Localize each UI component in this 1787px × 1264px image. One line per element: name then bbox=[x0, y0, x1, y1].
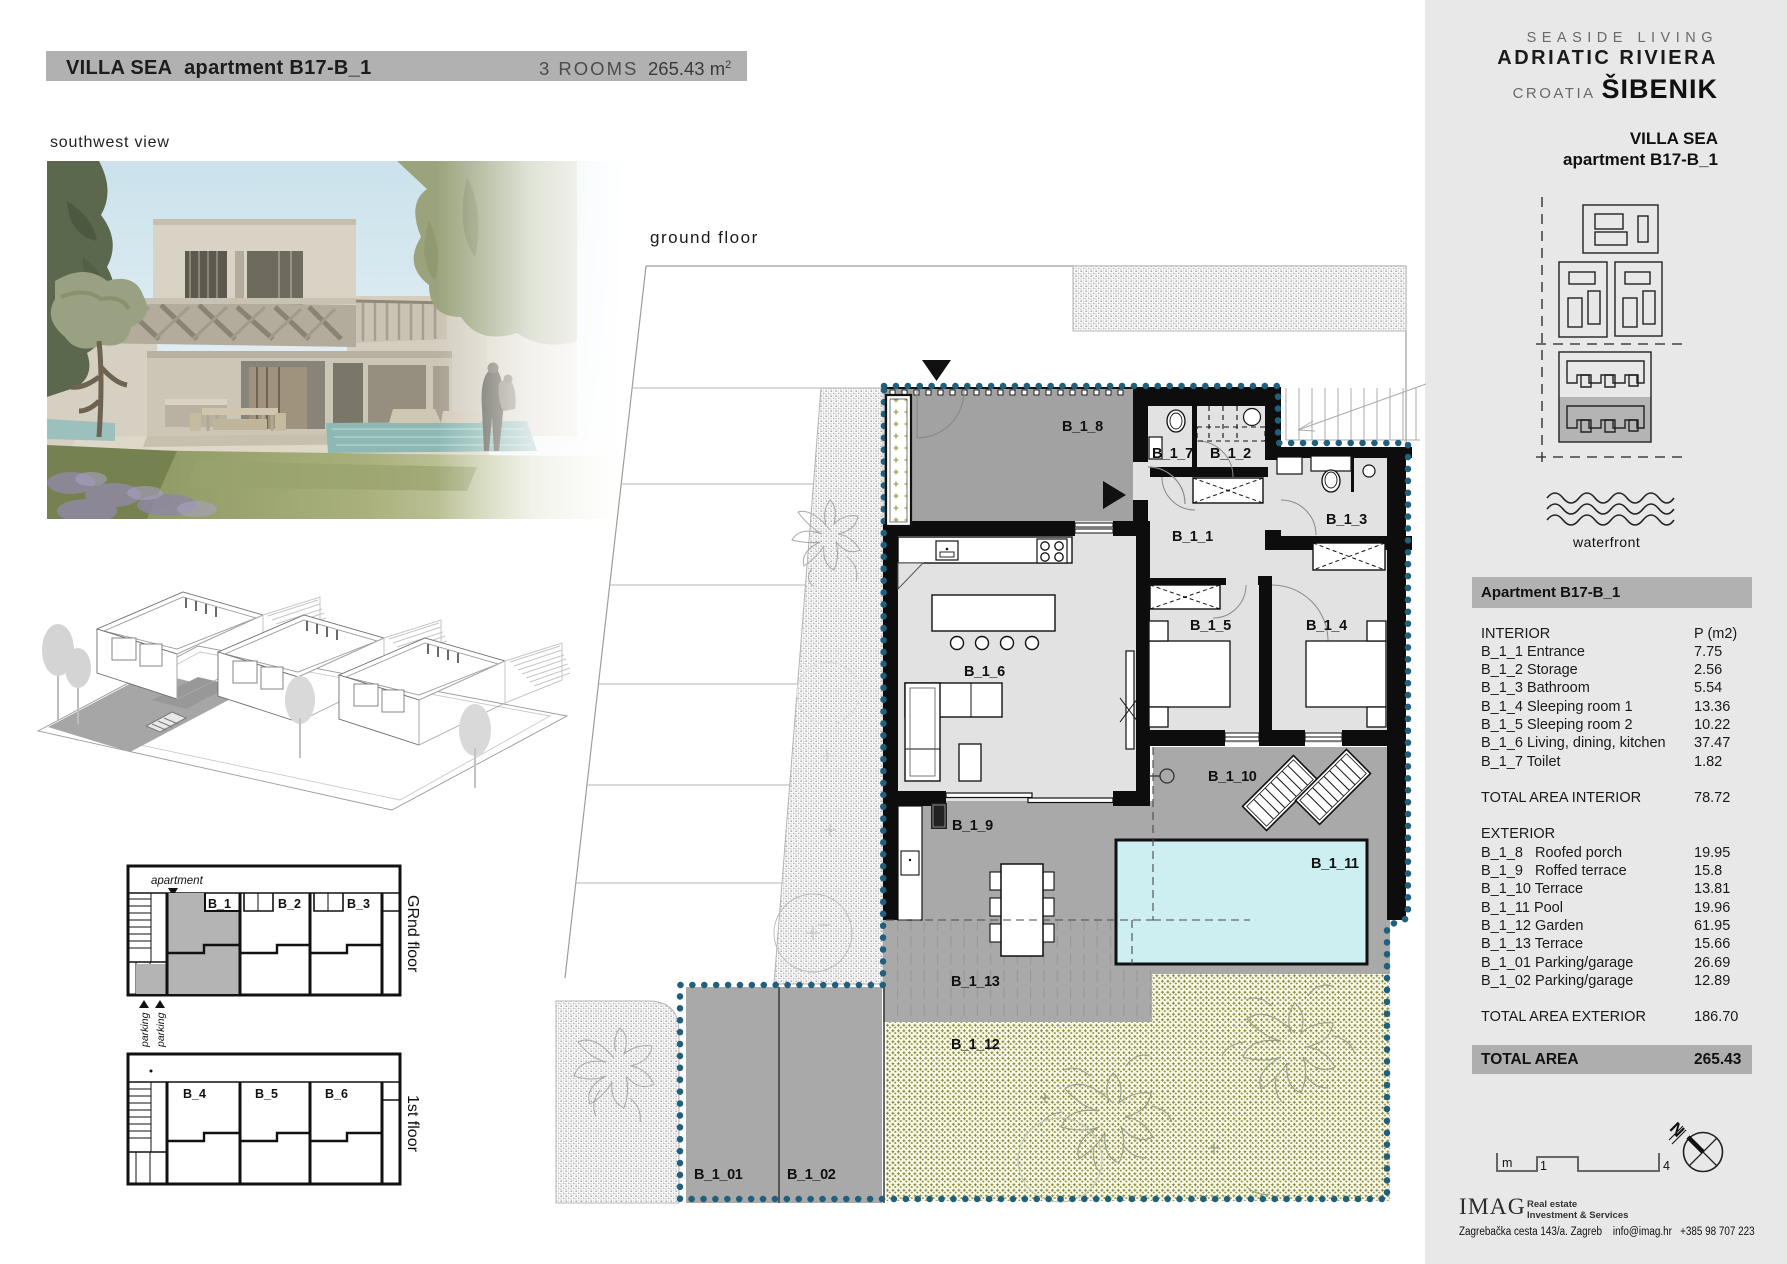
svg-text:B_1_6: B_1_6 bbox=[964, 664, 1005, 680]
svg-text:B_1_13: B_1_13 bbox=[951, 974, 1000, 990]
svg-text:1st floor: 1st floor bbox=[404, 1095, 421, 1153]
svg-text:B_1_4: B_1_4 bbox=[1306, 618, 1347, 634]
svg-text:parking: parking bbox=[139, 1012, 151, 1048]
svg-text:B_4: B_4 bbox=[183, 1087, 206, 1101]
svg-text:B_1_7: B_1_7 bbox=[1152, 446, 1193, 462]
svg-text:GRnd floor: GRnd floor bbox=[404, 895, 421, 973]
svg-text:B_1_12: B_1_12 bbox=[951, 1037, 1000, 1053]
svg-text:B_1_10: B_1_10 bbox=[1208, 769, 1257, 785]
svg-text:B_5: B_5 bbox=[255, 1087, 278, 1101]
svg-text:apartment: apartment bbox=[151, 875, 204, 887]
svg-text:B_1_11: B_1_11 bbox=[1311, 856, 1359, 872]
svg-text:B_1_9: B_1_9 bbox=[952, 818, 993, 834]
svg-text:parking: parking bbox=[155, 1012, 167, 1048]
svg-text:B_6: B_6 bbox=[325, 1087, 348, 1101]
svg-text:B_1_02: B_1_02 bbox=[787, 1167, 836, 1183]
svg-text:4: 4 bbox=[1663, 1159, 1670, 1173]
svg-text:B_1_3: B_1_3 bbox=[1326, 512, 1367, 528]
svg-text:1: 1 bbox=[1540, 1159, 1547, 1173]
svg-text:B_2: B_2 bbox=[278, 897, 301, 911]
svg-text:B_3: B_3 bbox=[347, 897, 370, 911]
svg-text:B_1_2: B_1_2 bbox=[1210, 446, 1251, 462]
svg-text:B_1_5: B_1_5 bbox=[1190, 618, 1231, 634]
svg-text:B_1_01: B_1_01 bbox=[694, 1167, 743, 1183]
svg-text:B_1_8: B_1_8 bbox=[1062, 419, 1103, 435]
svg-text:N: N bbox=[1666, 1119, 1688, 1141]
svg-text:B_1: B_1 bbox=[208, 897, 231, 911]
svg-text:B_1_1: B_1_1 bbox=[1172, 529, 1213, 545]
svg-text:ground floor: ground floor bbox=[650, 228, 759, 247]
svg-text:m: m bbox=[1502, 1156, 1512, 1170]
